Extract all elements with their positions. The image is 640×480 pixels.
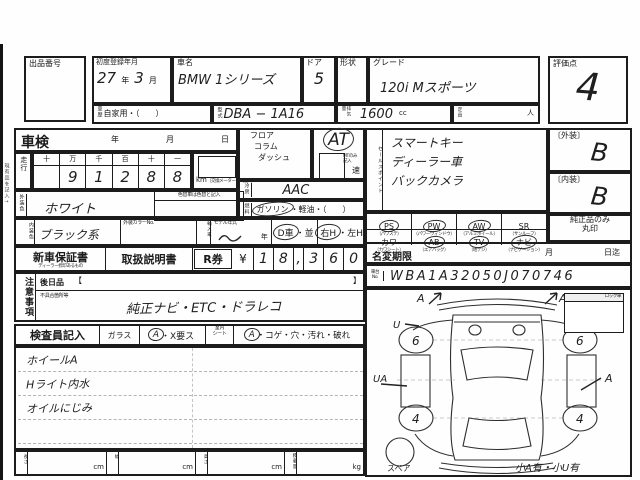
vin-label-2: No. xyxy=(367,276,383,281)
width-unit: cm xyxy=(182,464,193,472)
digit-header: 百 xyxy=(113,154,138,166)
at-value: AT xyxy=(326,130,351,150)
grade-label: グレード xyxy=(370,58,538,69)
first-registration-label: 初度登録年月 xyxy=(94,58,170,68)
exterior-rating-label: 〔外装〕 xyxy=(550,130,630,143)
displacement-label: 排気量 xyxy=(340,106,350,122)
name-change-label: 名変期限 xyxy=(372,248,412,263)
score-value: 4 xyxy=(549,62,628,111)
sales-point-box: セールスポイント スマートキー ディーラー車 バックカメラ xyxy=(365,128,548,212)
glass-options: ・X要ス xyxy=(161,329,194,342)
bracket-open: 【 xyxy=(74,277,82,286)
spare-label: スペア xyxy=(387,464,410,473)
grade-value: 120i Mスポーツ xyxy=(370,77,538,96)
displacement-unit: cc xyxy=(399,110,407,118)
shaken-label: 車検 xyxy=(21,132,49,152)
transmission-opt2: コラム xyxy=(240,141,310,152)
seat-options: ・コゲ・穴・汚れ・破れ xyxy=(257,329,351,341)
shape-box: 形状 xyxy=(336,56,368,104)
name-change-row: 名変期限 月 日迄 xyxy=(365,242,632,264)
length-label: 長さ xyxy=(16,452,28,474)
mt-unit: 速 xyxy=(352,167,360,176)
shaken-month-unit: 月 xyxy=(166,136,174,145)
auction-sheet: 現有品を記入→ 出品番号 初度登録年月 27 年 3 月 車名 BMW 1シリー… xyxy=(0,0,640,480)
caution-label: 注意事項 xyxy=(16,274,36,320)
model-code-value: DBA − 1A16 xyxy=(224,107,305,122)
genuine-parts-box: 純正品のみ 丸印 xyxy=(548,212,632,242)
handle-left-opt: 左H xyxy=(347,226,363,239)
car-name-value: BMW 1シリーズ xyxy=(174,69,300,88)
inspector-note-3: オイルにじみ xyxy=(26,399,92,416)
exterior-rating-box: 〔外装〕 B xyxy=(548,128,632,172)
mileage-digit: 8 xyxy=(139,166,164,188)
mileage-digit-table: 十 万 9 千 1 百 2 十 8 一 8 xyxy=(32,152,192,190)
shaken-year-unit: 年 xyxy=(111,136,119,145)
name-change-month: 月 xyxy=(545,249,553,258)
height-unit: cm xyxy=(271,464,282,472)
mileage-unit: km xyxy=(196,176,207,184)
sales-point-line: スマートキー xyxy=(391,134,546,153)
mileage-digit: 9 xyxy=(60,166,85,188)
width-label: 幅 xyxy=(107,452,119,474)
price-digit: 1 xyxy=(254,248,274,270)
lock-box: ロック車 xyxy=(564,293,624,333)
scan-edge xyxy=(0,44,3,480)
displacement-box: 排気量 1600 cc xyxy=(336,104,452,124)
transmission-box: フロア コラム ダッシュ xyxy=(238,128,312,180)
wheel-front-right: 6 xyxy=(576,334,584,348)
guide-line xyxy=(18,443,363,444)
dealer-opt: D車 xyxy=(276,226,296,239)
later-items-label: 後日品 xyxy=(40,277,64,288)
first-reg-year-unit: 年 xyxy=(121,76,129,85)
genuine-note-2: 丸印 xyxy=(550,225,630,234)
transmission-opt3: ダッシュ xyxy=(240,152,310,163)
int-color-label: 内装色 xyxy=(16,220,35,244)
inspector-header: 検査員記入 ガラス A・X要ス 室内 シート A・コゲ・穴・汚れ・破れ xyxy=(14,324,365,346)
model-year-unit: 年 xyxy=(261,234,268,242)
lot-number-box: 出品番号 xyxy=(24,56,86,122)
scribble-mark xyxy=(217,230,243,244)
seat-label-2: シート xyxy=(206,332,233,338)
equip-aw: AW xyxy=(471,222,488,231)
capacity-box: 定員 人 xyxy=(452,104,540,124)
transmission-opt1: フロア xyxy=(240,130,310,141)
mileage-digit: 2 xyxy=(113,166,138,188)
aircon-label: 冷房 xyxy=(243,183,252,197)
length-unit: cm xyxy=(93,464,104,472)
grade-box: グレード 120i Mスポーツ xyxy=(368,56,540,104)
price-digit: 8 xyxy=(274,248,294,270)
history-label: 車歴 xyxy=(96,106,102,122)
digit-header: 万 xyxy=(60,154,85,166)
mileage-label: 走行 xyxy=(19,156,27,188)
interior-rating-label: 〔内装〕 xyxy=(550,174,630,187)
shaken-box: 車検 年 月 日 xyxy=(14,128,238,152)
guide-line xyxy=(18,395,363,396)
mileage-digit: 1 xyxy=(86,166,111,188)
equipment-grid: PS（パワステ） PW（パワーウィンドウ） AW（アルミホイール） SR（サンル… xyxy=(365,212,548,244)
ext-color-value: ホワイト xyxy=(44,198,96,217)
fuel-opt-gasoline: ガソリン xyxy=(255,204,291,215)
capacity-unit: 人 xyxy=(527,110,534,118)
mark-left-mid: UA xyxy=(373,374,387,385)
mt-note: MTのみ記入 xyxy=(343,155,361,165)
fuel-opt-diesel: 軽油 xyxy=(299,205,315,214)
digit-header: 千 xyxy=(86,154,111,166)
margin-note: 現有品を記入→ xyxy=(3,163,9,223)
price-digit: 3 xyxy=(304,248,324,270)
wheel-rear-right: 4 xyxy=(576,412,584,426)
first-reg-month: 3 xyxy=(134,69,144,87)
yen-sign: ¥ xyxy=(233,248,254,270)
aircon-value: AAC xyxy=(283,183,310,198)
seat-grade: A xyxy=(247,330,257,340)
model-year-label: モデル年式 xyxy=(211,220,270,228)
fuel-label: 燃料 xyxy=(243,203,252,216)
ext-color-label: 外装色 xyxy=(18,194,27,218)
r-ticket-label: R券 xyxy=(194,249,232,269)
warranty-note: ディーラー捺印あるもの xyxy=(16,265,105,270)
int-color-value: ブラック系 xyxy=(35,220,121,244)
mileage-label-cell: 走行 xyxy=(14,152,32,190)
defect-label: 不具合箇所等 xyxy=(40,294,68,300)
fuel-row: 燃料 ガソリン・軽油・（ ） xyxy=(238,200,365,218)
guide-line xyxy=(18,419,363,420)
int-color-row: 内装色 ブラック系 外装カラーNo. 輸入車 モデル年式 年 D車・並 右H・左… xyxy=(14,218,365,246)
inspector-note-1: ホイールA xyxy=(26,352,78,369)
digit-header: 一 xyxy=(165,154,190,166)
color-change-box: 色替車は色替と記入 xyxy=(154,191,244,221)
glass-grade: A xyxy=(151,330,161,340)
mileage-digit xyxy=(34,166,59,188)
defect-value: 純正ナビ・ETC・ドラレコ xyxy=(126,296,282,318)
history-value: 自家用・（ ） xyxy=(104,110,164,119)
vin-value: WBA1A32050J070746 xyxy=(384,269,575,284)
warranty-label: 新車保証書 xyxy=(16,249,105,265)
import-label: 輸入車 xyxy=(197,220,211,244)
load-label: 積載量 xyxy=(285,452,297,474)
color-no-label: 外装カラーNo. xyxy=(121,220,196,228)
price-digit: 0 xyxy=(344,248,363,270)
inspector-label: 検査員記入 xyxy=(16,326,100,344)
mt-entry-box xyxy=(319,153,345,179)
color-change-note: 色替車は色替と記入 xyxy=(155,192,243,201)
glass-label: ガラス xyxy=(100,326,140,344)
inspector-note-2: Hライト内水 xyxy=(26,375,90,392)
car-name-label: 車名 xyxy=(174,58,300,69)
inspector-notes: ホイールA Hライト内水 オイルにじみ xyxy=(14,346,365,450)
bracket-close: 】 xyxy=(353,277,361,286)
aircon-row: 冷房 AAC xyxy=(238,180,365,200)
lock-label: ロック車 xyxy=(565,294,623,302)
parallel-opt: 並 xyxy=(305,226,314,239)
first-reg-year: 27 xyxy=(97,69,116,87)
door-value: 5 xyxy=(304,69,334,88)
mileage-digit: 8 xyxy=(165,166,190,188)
score-box: 評価点 4 xyxy=(548,56,628,124)
mark-right-mid: A xyxy=(604,372,613,385)
exterior-rating-value: B xyxy=(589,137,609,168)
shaken-day-unit: 日 xyxy=(221,136,229,145)
handle-right-opt: 右H xyxy=(318,226,338,239)
mileage-unit-cell: km（交換メーター等−記入） xyxy=(192,152,238,190)
lot-number-label: 出品番号 xyxy=(26,58,84,71)
wheel-rear-left: 4 xyxy=(412,412,420,426)
interior-rating-value: B xyxy=(589,181,609,212)
car-name-box: 車名 BMW 1シリーズ xyxy=(172,56,302,104)
mark-front-left: A xyxy=(416,292,425,305)
shape-label: 形状 xyxy=(338,58,366,69)
interior-rating-box: 〔内装〕 B xyxy=(548,172,632,216)
first-reg-month-unit: 月 xyxy=(149,76,157,85)
load-unit: kg xyxy=(353,464,362,472)
capacity-label: 定員 xyxy=(456,107,461,121)
caution-block: 注意事項 後日品 【 】 不具合箇所等 純正ナビ・ETC・ドラレコ xyxy=(14,272,365,322)
ext-color-row: 外装色 ホワイト 色替車は色替と記入 xyxy=(14,190,238,218)
vin-row: 車台 No. WBA1A32050J070746 xyxy=(365,264,632,288)
wheel-front-left: 6 xyxy=(412,334,420,348)
fuel-rest: ・（ ） xyxy=(315,205,351,214)
model-code-box: 型式 DBA − 1A16 xyxy=(212,104,336,124)
model-code-label: 型式 xyxy=(216,107,222,121)
digit-header: 十 xyxy=(139,154,164,166)
at-box: AT MTのみ記入 速 xyxy=(312,128,365,180)
warranty-row: 新車保証書 ディーラー捺印あるもの 取扱説明書 R券 ¥ 1 8 , 3 6 0 xyxy=(14,246,365,272)
history-box: 車歴 自家用・（ ） xyxy=(92,104,212,124)
equip-ps: PS xyxy=(382,222,396,231)
digit-header: 十 xyxy=(34,154,59,166)
manual-label: 取扱説明書 xyxy=(106,248,193,270)
price-comma: , xyxy=(294,248,304,270)
guide-divider xyxy=(192,348,193,448)
first-registration-box: 初度登録年月 27 年 3 月 xyxy=(92,56,172,104)
sales-point-label: セールスポイント xyxy=(367,130,383,210)
sales-point-line: ディーラー車 xyxy=(391,153,546,172)
door-label: ドア xyxy=(304,58,334,69)
diagram-area: A A U UA A 6 6 4 4 スペア 小A有・小U有 ロック車 xyxy=(365,288,632,477)
displacement-value: 1600 xyxy=(360,107,393,122)
price-digit: 6 xyxy=(324,248,344,270)
door-box: ドア 5 xyxy=(302,56,336,104)
guide-line xyxy=(18,371,363,372)
height-label: 高さ xyxy=(196,452,208,474)
equip-pw: PW xyxy=(426,222,443,231)
mark-left-front: U xyxy=(393,320,401,331)
dimensions-row: 長さ cm 幅 cm 高さ cm 積載量 kg xyxy=(14,450,365,476)
name-change-deadline: 日迄 xyxy=(604,249,620,258)
sales-point-line: バックカメラ xyxy=(391,172,546,191)
damage-legend: 小A有・小U有 xyxy=(515,462,581,474)
